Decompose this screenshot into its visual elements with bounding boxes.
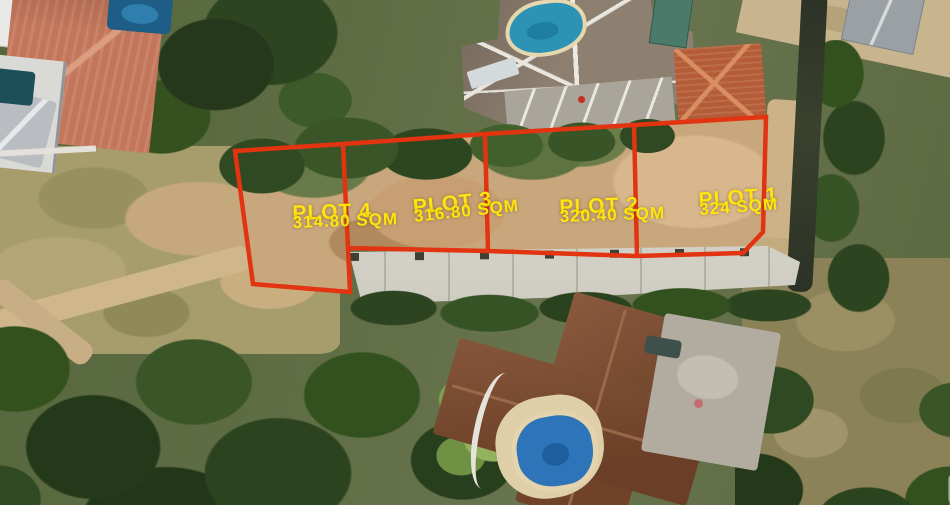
driveway — [641, 313, 782, 471]
swimming-pool — [0, 68, 36, 106]
plot-area: 314.80 SQM — [292, 210, 398, 231]
plot-area: 320.40 SQM — [559, 204, 665, 225]
umbrella-marker — [694, 399, 703, 408]
green-tarp — [649, 0, 694, 48]
aerial-photo: PLOT 1 324 SQM PLOT 2 320.40 SQM PLOT 3 … — [0, 0, 950, 505]
swimming-pool — [106, 0, 173, 35]
terracotta-roof-house — [673, 43, 766, 126]
watermark-text: FazWaz — [946, 468, 950, 505]
